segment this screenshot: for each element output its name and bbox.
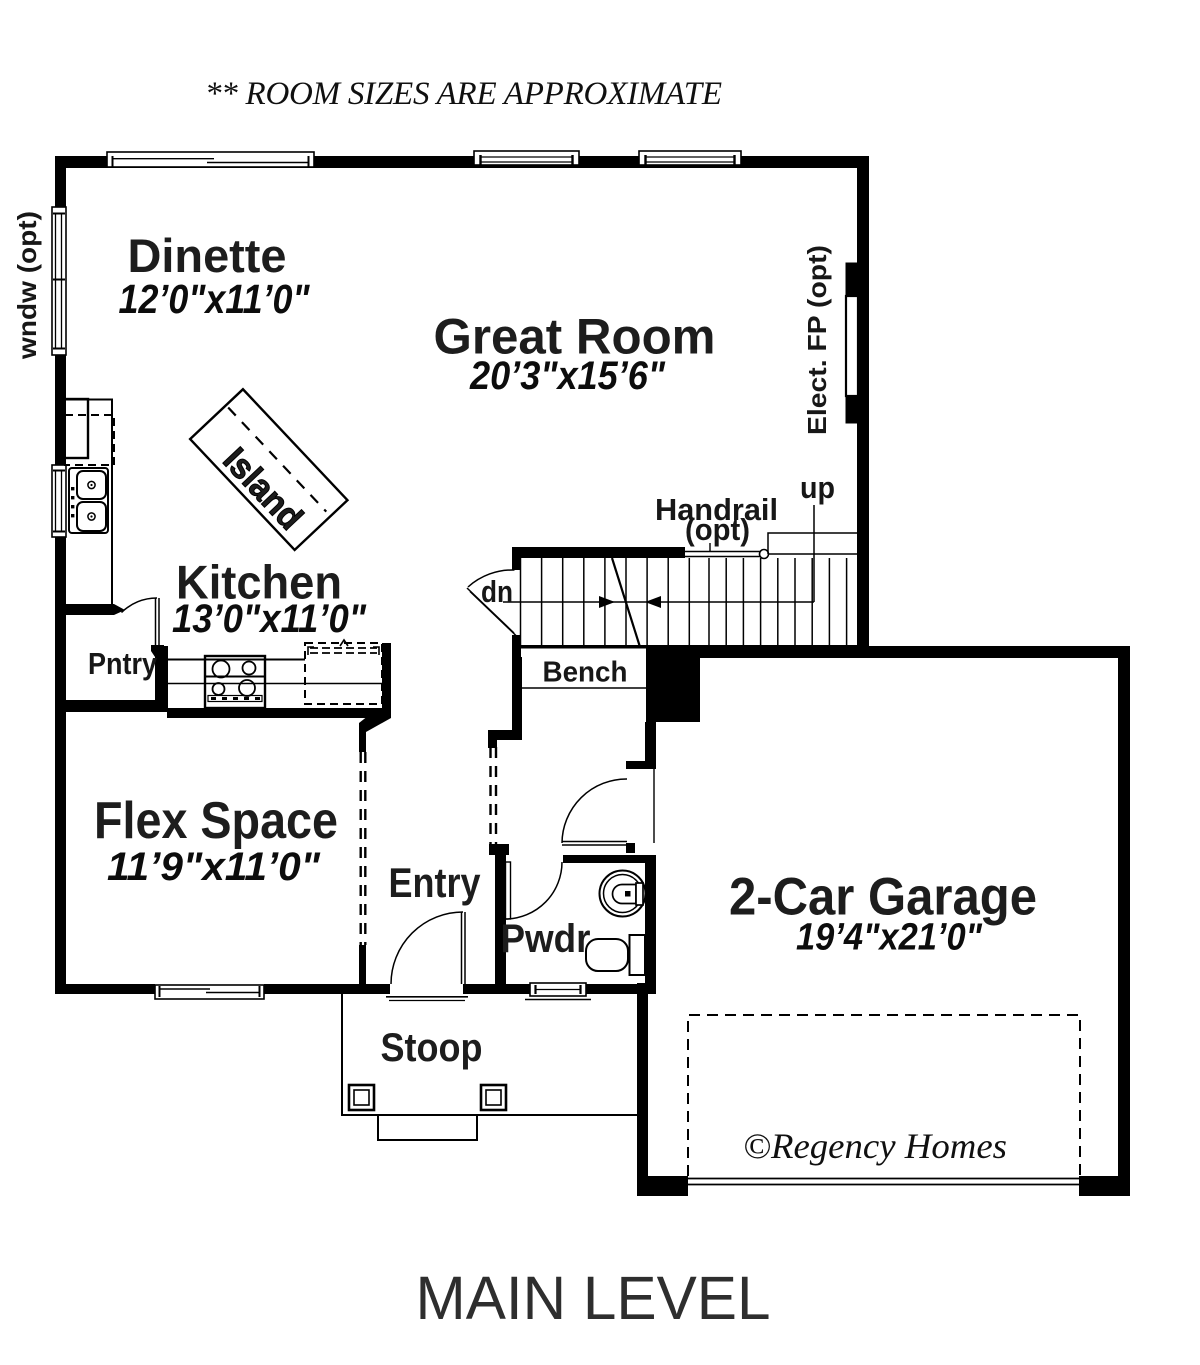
svg-text:12’0"x11’0": 12’0"x11’0" [119, 276, 311, 322]
svg-text:(opt): (opt) [685, 512, 750, 547]
svg-text:11’9"x11’0": 11’9"x11’0" [107, 845, 321, 889]
svg-text:dn: dn [481, 574, 513, 609]
svg-text:wndw (opt): wndw (opt) [12, 211, 42, 360]
svg-text:©Regency Homes: ©Regency Homes [743, 1126, 1007, 1166]
svg-text:19’4"x21’0": 19’4"x21’0" [796, 917, 983, 959]
svg-text:20’3"x15’6": 20’3"x15’6" [469, 354, 666, 398]
svg-text:Pwdr: Pwdr [501, 917, 591, 961]
svg-text:Stoop: Stoop [381, 1026, 483, 1070]
svg-text:up: up [800, 470, 835, 505]
svg-text:** ROOM SIZES ARE APPROXIMATE: ** ROOM SIZES ARE APPROXIMATE [205, 76, 722, 112]
svg-text:Elect. FP (opt): Elect. FP (opt) [802, 245, 832, 435]
svg-text:13’0"x11’0": 13’0"x11’0" [172, 597, 367, 641]
svg-text:MAIN LEVEL: MAIN LEVEL [416, 1264, 771, 1332]
svg-text:Entry: Entry [389, 859, 482, 906]
svg-text:Flex Space: Flex Space [94, 792, 338, 850]
svg-text:Bench: Bench [543, 657, 628, 689]
svg-text:Pntry: Pntry [88, 646, 158, 681]
